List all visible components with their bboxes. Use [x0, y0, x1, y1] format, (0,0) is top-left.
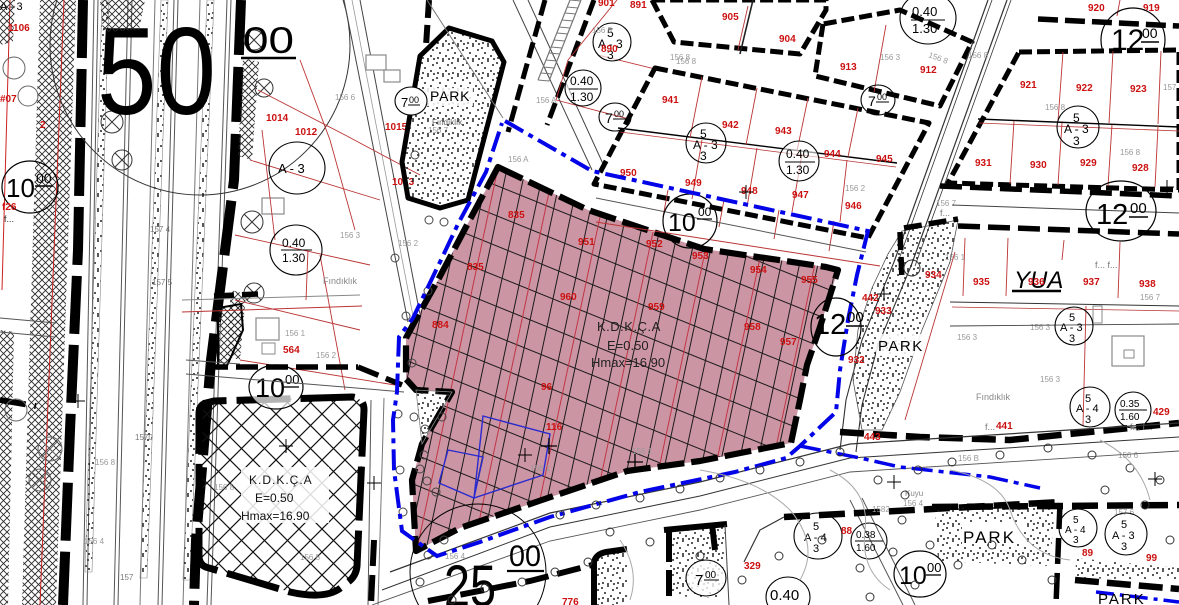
- svg-text:930: 930: [1030, 160, 1047, 171]
- svg-text:K.D.K.Ç.A: K.D.K.Ç.A: [249, 473, 313, 487]
- svg-text:f... f...: f... f...: [1130, 422, 1153, 432]
- svg-text:429: 429: [1153, 407, 1170, 418]
- svg-text:00: 00: [614, 109, 624, 119]
- svg-text:PARK: PARK: [878, 338, 924, 355]
- svg-text:7: 7: [401, 95, 408, 110]
- svg-text:1015: 1015: [385, 122, 408, 133]
- svg-text:156 1: 156 1: [632, 447, 653, 456]
- svg-text:0.40: 0.40: [912, 4, 937, 19]
- svg-text:7: 7: [695, 572, 703, 589]
- svg-text:00: 00: [705, 570, 717, 581]
- svg-text:157: 157: [120, 573, 134, 582]
- svg-text:947: 947: [792, 190, 809, 201]
- svg-text:PARK: PARK: [430, 88, 470, 104]
- svg-text:Hmax=16.90: Hmax=16.90: [591, 355, 665, 370]
- svg-text:1106: 1106: [8, 23, 30, 34]
- svg-text:923: 923: [1130, 84, 1147, 95]
- svg-text:25: 25: [444, 554, 496, 605]
- svg-text:156 5: 156 5: [592, 26, 613, 35]
- svg-text:Fındıklık: Fındıklık: [976, 392, 1011, 402]
- svg-text:3: 3: [1121, 541, 1127, 553]
- svg-text:835: 835: [467, 262, 484, 273]
- svg-text:954: 954: [750, 265, 767, 276]
- svg-text:891: 891: [630, 0, 647, 11]
- svg-text:0.40: 0.40: [282, 236, 306, 250]
- svg-text:156 A: 156 A: [536, 96, 557, 105]
- svg-text:156 6: 156 6: [1118, 451, 1139, 460]
- svg-text:A - 3: A - 3: [0, 1, 23, 13]
- svg-text:835: 835: [508, 210, 525, 221]
- svg-text:3: 3: [700, 149, 707, 163]
- svg-text:1582: 1582: [872, 505, 890, 514]
- svg-text:157 4: 157 4: [150, 225, 171, 234]
- svg-text:949: 949: [685, 178, 702, 189]
- svg-text:1012: 1012: [295, 127, 318, 138]
- svg-text:946: 946: [845, 201, 862, 212]
- svg-text:156 8: 156 8: [300, 553, 321, 562]
- svg-text:933: 933: [875, 306, 892, 317]
- svg-text:2: 2: [40, 120, 46, 131]
- svg-text:E=0.50: E=0.50: [607, 338, 649, 353]
- svg-text:157 2: 157 2: [1163, 83, 1179, 92]
- svg-text:f... f...: f... f...: [1095, 260, 1118, 270]
- svg-text:944: 944: [824, 149, 841, 160]
- svg-text:157 5: 157 5: [152, 278, 173, 287]
- svg-text:89: 89: [1082, 548, 1094, 559]
- svg-text:99: 99: [1146, 553, 1158, 564]
- svg-text:156 4: 156 4: [903, 499, 924, 508]
- svg-text:958: 958: [744, 322, 761, 333]
- svg-text:3: 3: [1085, 414, 1091, 426]
- svg-text:f...: f...: [4, 214, 14, 224]
- svg-text:957: 957: [780, 337, 797, 348]
- svg-text:00: 00: [509, 540, 541, 573]
- svg-text:922: 922: [1076, 83, 1093, 94]
- svg-text:1570: 1570: [135, 433, 153, 442]
- svg-text:00: 00: [927, 560, 941, 575]
- svg-text:156 8: 156 8: [676, 57, 697, 66]
- svg-text:1.60: 1.60: [856, 543, 876, 554]
- svg-text:959: 959: [648, 302, 665, 313]
- svg-text:K.D.K.Ç.A: K.D.K.Ç.A: [597, 319, 661, 334]
- svg-text:955: 955: [801, 275, 818, 286]
- svg-text:564: 564: [283, 345, 300, 356]
- svg-text:116: 116: [546, 422, 563, 433]
- svg-text:00: 00: [285, 372, 299, 387]
- svg-text:f26: f26: [2, 202, 17, 213]
- svg-text:Hmax=16.90: Hmax=16.90: [241, 509, 310, 523]
- svg-text:441: 441: [996, 421, 1013, 432]
- svg-text:PARK: PARK: [1098, 591, 1146, 605]
- svg-text:Kuyu: Kuyu: [905, 489, 923, 498]
- svg-text:10: 10: [255, 373, 285, 403]
- svg-text:934: 934: [925, 270, 942, 281]
- svg-text:1.30: 1.30: [786, 163, 810, 177]
- svg-text:7: 7: [605, 110, 613, 126]
- svg-text:156 7: 156 7: [936, 199, 957, 208]
- svg-text:3: 3: [1069, 333, 1075, 345]
- svg-text:943: 943: [775, 126, 792, 137]
- svg-text:0.35: 0.35: [1120, 399, 1140, 410]
- svg-text:156 3: 156 3: [957, 333, 978, 342]
- svg-text:f...: f...: [985, 422, 995, 432]
- svg-text:776: 776: [562, 597, 579, 605]
- svg-text:929: 929: [1080, 158, 1097, 169]
- svg-text:156 8: 156 8: [968, 51, 989, 60]
- svg-text:945: 945: [876, 154, 893, 165]
- svg-text:156 6: 156 6: [335, 93, 356, 102]
- svg-text:3: 3: [1073, 134, 1080, 148]
- svg-text:00: 00: [409, 95, 419, 105]
- svg-text:00: 00: [877, 92, 887, 102]
- svg-text:1.30: 1.30: [570, 90, 594, 104]
- svg-text:12: 12: [1096, 199, 1128, 231]
- svg-text:942: 942: [722, 120, 739, 131]
- svg-text:10: 10: [899, 562, 927, 590]
- svg-text:0.38: 0.38: [856, 530, 876, 541]
- svg-text:931: 931: [975, 158, 992, 169]
- svg-text:905: 905: [722, 12, 739, 23]
- svg-text:156 1: 156 1: [530, 464, 551, 473]
- svg-text:156 B: 156 B: [958, 454, 979, 463]
- svg-text:7: 7: [868, 93, 876, 109]
- svg-text:Fındıklık: Fındıklık: [323, 276, 358, 286]
- svg-text:10: 10: [668, 209, 696, 237]
- svg-text:919: 919: [1143, 3, 1160, 14]
- svg-text:156 3: 156 3: [1040, 375, 1061, 384]
- svg-text:156 2: 156 2: [845, 184, 866, 193]
- svg-text:901: 901: [598, 0, 615, 9]
- svg-text:913: 913: [840, 62, 857, 73]
- svg-text:921: 921: [1020, 80, 1037, 91]
- svg-text:156 8: 156 8: [214, 483, 235, 492]
- svg-text:952: 952: [646, 239, 663, 250]
- svg-text:156 2: 156 2: [316, 351, 337, 360]
- svg-text:329: 329: [744, 561, 761, 572]
- svg-text:f...: f...: [940, 208, 950, 218]
- svg-text:941: 941: [662, 95, 679, 106]
- svg-text:937: 937: [1083, 277, 1100, 288]
- svg-text:156 A: 156 A: [508, 155, 529, 164]
- svg-text:156 2: 156 2: [398, 239, 419, 248]
- svg-text:904: 904: [779, 34, 796, 45]
- svg-text:890: 890: [601, 44, 618, 55]
- svg-text:936: 936: [1028, 277, 1045, 288]
- svg-text:932: 932: [848, 355, 865, 366]
- svg-text:884: 884: [432, 320, 449, 331]
- svg-text:1014: 1014: [266, 113, 289, 124]
- svg-text:00: 00: [698, 205, 712, 219]
- svg-text:935: 935: [973, 277, 990, 288]
- svg-text:00: 00: [1142, 25, 1158, 41]
- svg-text:938: 938: [1139, 279, 1156, 290]
- svg-text:96: 96: [541, 382, 553, 393]
- svg-text:156 1: 156 1: [285, 329, 306, 338]
- svg-text:E=0.50: E=0.50: [255, 491, 294, 505]
- svg-text:Fındıklık: Fındıklık: [432, 118, 463, 127]
- svg-text:157 6: 157 6: [1114, 508, 1135, 517]
- svg-text:88: 88: [841, 526, 853, 537]
- svg-text:443: 443: [864, 432, 881, 443]
- svg-text:#07: #07: [0, 94, 17, 105]
- svg-text:00: 00: [1130, 200, 1147, 217]
- svg-text:951: 951: [578, 237, 595, 248]
- svg-text:1.30: 1.30: [282, 251, 306, 265]
- svg-text:00: 00: [847, 309, 864, 326]
- svg-text:442: 442: [862, 293, 879, 304]
- svg-text:156 3: 156 3: [880, 53, 901, 62]
- svg-text:920: 920: [1088, 3, 1105, 14]
- svg-text:953: 953: [692, 251, 709, 262]
- svg-text:156 7: 156 7: [1140, 293, 1161, 302]
- svg-text:0.40: 0.40: [786, 147, 810, 161]
- svg-text:156 4: 156 4: [84, 537, 105, 546]
- svg-text:1.30: 1.30: [912, 21, 937, 36]
- svg-text:928: 928: [1132, 163, 1149, 174]
- svg-text:156 8: 156 8: [95, 458, 116, 467]
- svg-text:156 8: 156 8: [1045, 103, 1066, 112]
- svg-text:00: 00: [36, 170, 52, 186]
- svg-text:912: 912: [920, 65, 937, 76]
- svg-text:12: 12: [814, 309, 846, 341]
- svg-text:3: 3: [1073, 535, 1079, 546]
- svg-text:10: 10: [6, 173, 35, 203]
- svg-text:3: 3: [813, 543, 819, 555]
- svg-text:960: 960: [560, 292, 577, 303]
- svg-text:156 3: 156 3: [1030, 323, 1051, 332]
- svg-text:156 3: 156 3: [340, 231, 361, 240]
- svg-text:156 8: 156 8: [1120, 148, 1141, 157]
- svg-text:0.40: 0.40: [570, 74, 594, 88]
- svg-text:00: 00: [243, 20, 294, 61]
- svg-text:PARK: PARK: [963, 528, 1016, 547]
- svg-text:0.40: 0.40: [770, 587, 799, 604]
- svg-text:A - 3: A - 3: [278, 161, 305, 176]
